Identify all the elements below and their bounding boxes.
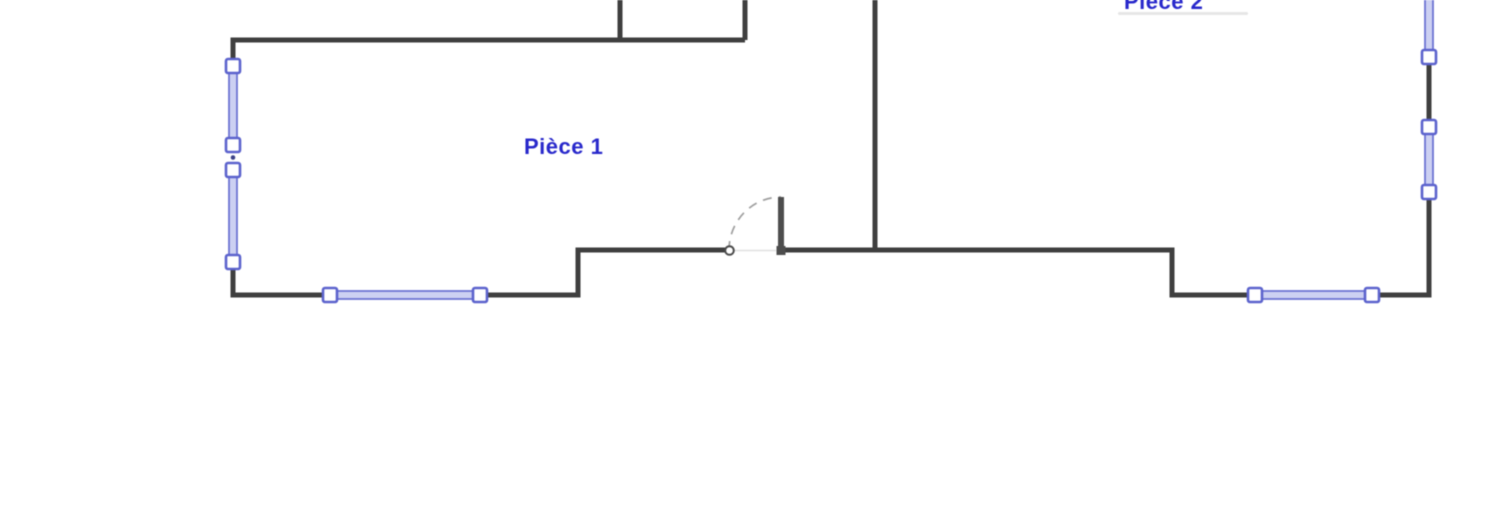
window-right-mid[interactable] [1422, 120, 1436, 199]
window-bottom-left[interactable] [323, 288, 487, 302]
window-left-upper[interactable] [226, 59, 240, 152]
window-bottom-right[interactable] [1248, 288, 1379, 302]
room-label-piece-2-underline [1118, 12, 1248, 15]
selection-handle[interactable] [1248, 288, 1262, 302]
wall-bottom-right[interactable] [1370, 198, 1429, 295]
selection-handle[interactable] [226, 138, 240, 152]
door-latch-point[interactable] [725, 246, 734, 255]
floor-plan: Pièce 1 Pièce 2 [0, 0, 1504, 512]
window-glass[interactable] [1425, 127, 1433, 192]
wall-top[interactable] [233, 40, 745, 64]
room-label-piece-1[interactable]: Pièce 1 [524, 135, 603, 159]
selection-handle[interactable] [226, 255, 240, 269]
window-glass[interactable] [229, 170, 237, 262]
window-left-lower[interactable] [226, 155, 240, 269]
floor-plan-canvas: Pièce 1 Pièce 2 [0, 0, 1504, 512]
walls [233, 0, 1429, 295]
selection-handle[interactable] [226, 59, 240, 73]
selection-handle[interactable] [1422, 185, 1436, 199]
door-hinge-node[interactable] [777, 246, 786, 255]
wall-bottom-left[interactable] [233, 264, 332, 295]
floor-plan-drawing [0, 0, 1504, 512]
selection-handle[interactable] [323, 288, 337, 302]
window-right-top[interactable] [1422, 0, 1436, 64]
window-junction-dot [231, 155, 236, 160]
selection-handle[interactable] [1422, 120, 1436, 134]
selection-handle[interactable] [1365, 288, 1379, 302]
door[interactable] [725, 197, 785, 255]
window-glass[interactable] [1425, 0, 1433, 57]
selection-handle[interactable] [226, 163, 240, 177]
selection-handle[interactable] [1422, 50, 1436, 64]
window-glass[interactable] [1255, 291, 1372, 299]
window-glass[interactable] [330, 291, 480, 299]
window-glass[interactable] [229, 66, 237, 145]
door-swing-arc [729, 197, 781, 250]
wall-bottom-step-left[interactable] [478, 250, 726, 295]
wall-bottom-step-right[interactable] [784, 250, 1257, 295]
selection-handle[interactable] [473, 288, 487, 302]
